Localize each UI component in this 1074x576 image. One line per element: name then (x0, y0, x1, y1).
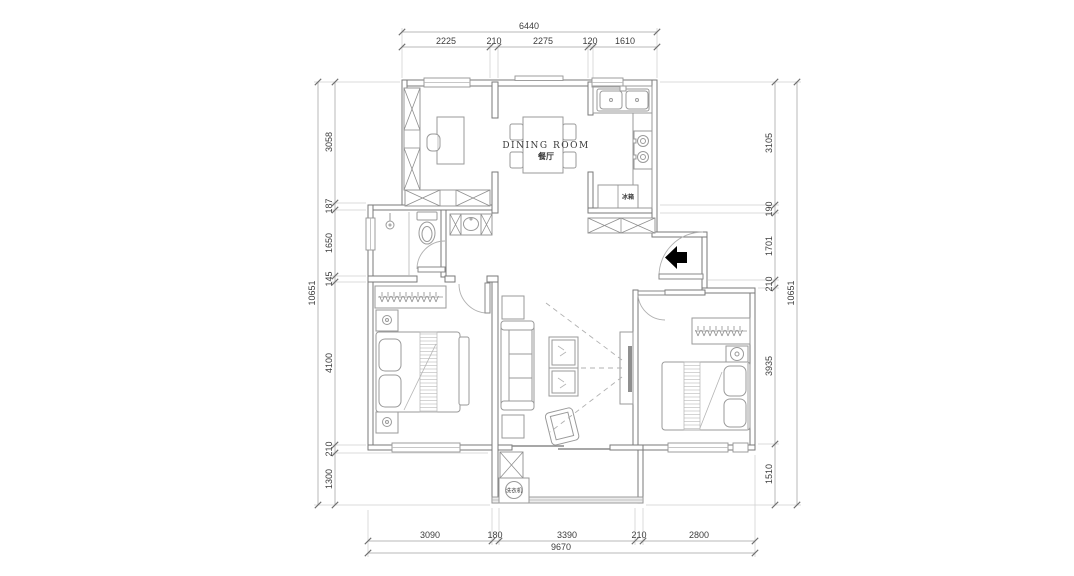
dim-bottom-total: 9670 (551, 542, 571, 552)
dim-left-seg-4: 4100 (324, 353, 334, 373)
nightstand-top (376, 310, 398, 331)
dim-bottom-seg-0: 3090 (420, 530, 440, 540)
kitchen-stove (633, 131, 652, 169)
shower-head (386, 213, 394, 229)
dim-left-seg-6: 1300 (324, 469, 334, 489)
window-bedroom2-bottom (668, 443, 748, 452)
dim-left-seg-5: 210 (324, 441, 334, 456)
dim-right-seg-4: 3935 (764, 356, 774, 376)
wall-kitchen-bottom (588, 208, 657, 213)
wall-hall-c (487, 276, 498, 282)
study-desk (437, 117, 464, 164)
dimension-bottom: 3090 180 3390 210 2800 9670 (365, 455, 758, 557)
wall-balcony-right (638, 450, 643, 503)
wall-bedroom2-top (665, 290, 705, 295)
master-bed (376, 332, 469, 412)
floor-plan: 6440 2225 210 2275 120 1610 3090 180 339… (0, 0, 1074, 576)
study-cabinet (405, 190, 490, 206)
floor-plan-canvas: 6440 2225 210 2275 120 1610 3090 180 339… (0, 0, 1074, 576)
bed-bench (459, 337, 469, 405)
dim-top-seg-1: 210 (486, 36, 501, 46)
wall-hall-a (368, 276, 417, 282)
dim-right-seg-3: 210 (764, 276, 774, 291)
master-bedroom-door (459, 283, 490, 313)
doors (417, 232, 703, 320)
nightstand-bottom (376, 412, 398, 433)
vanity (450, 214, 492, 235)
bedroom2-wardrobe (692, 318, 750, 344)
bathroom (386, 212, 492, 244)
balcony-sliding-door (512, 446, 610, 449)
window-bath-left (366, 218, 375, 250)
study-room (404, 88, 490, 206)
living-room (501, 296, 633, 446)
sofa (501, 321, 534, 410)
armchair (545, 407, 580, 446)
wall-entry-east (702, 237, 707, 293)
dim-right-total: 10651 (786, 280, 796, 305)
shoe-cabinet (588, 218, 655, 233)
dim-bottom-seg-4: 2800 (689, 530, 709, 540)
washer-label: 洗衣机 (506, 487, 523, 495)
dim-right-seg-0: 3105 (764, 133, 774, 153)
tv-screen (628, 346, 632, 392)
wall-kitchen-right (652, 80, 657, 235)
wall-hall-b (445, 276, 455, 282)
master-bedroom (375, 286, 469, 433)
fridge: 冰箱 (598, 185, 638, 208)
dim-top-seg-4: 1610 (615, 36, 635, 46)
kitchen-sink (597, 86, 649, 111)
wall-master-right (492, 276, 498, 503)
dining-chair-2 (510, 152, 523, 168)
wall-entry-top (652, 232, 707, 237)
toilet (417, 212, 437, 244)
bedroom2-door (638, 291, 665, 320)
dimension-top: 6440 2225 210 2275 120 1610 (399, 21, 660, 78)
window-dining-top (515, 76, 563, 81)
dim-right-seg-5: 1510 (764, 464, 774, 484)
bedroom2-bed (662, 362, 750, 430)
dining-room: DINING ROOM 餐厅 (502, 117, 589, 173)
fridge-label: 冰箱 (622, 193, 634, 201)
window-master-bottom (392, 443, 460, 452)
wall-step (702, 288, 755, 293)
washing-machine: 洗衣机 (499, 478, 529, 503)
wall-living-bottom-b (610, 445, 643, 450)
dim-right-seg-2: 1701 (764, 236, 774, 256)
study-chair (427, 134, 440, 151)
bedroom2 (662, 318, 750, 430)
dining-room-label-zh: 餐厅 (537, 151, 554, 161)
dining-chair-3 (563, 124, 576, 140)
wall-living-bottom-a (498, 445, 512, 450)
dim-left-seg-0: 3058 (324, 132, 334, 152)
wall-kitchen-left-b (588, 172, 593, 213)
coffee-table (549, 337, 578, 396)
dining-chair-4 (563, 152, 576, 168)
dim-left-seg-2: 1650 (324, 233, 334, 253)
dining-room-label-en: DINING ROOM (502, 141, 589, 151)
dim-bottom-seg-2: 3390 (557, 530, 577, 540)
balcony: 洗衣机 (499, 452, 529, 503)
dim-top-seg-0: 2225 (436, 36, 456, 46)
dim-left-seg-1: 187 (324, 198, 334, 213)
wall-bedroom2-right (750, 293, 755, 450)
dim-top-seg-3: 120 (582, 36, 597, 46)
wall-study-right-b (492, 172, 498, 213)
dim-bottom-seg-3: 210 (631, 530, 646, 540)
side-table-bottom (502, 415, 524, 438)
dim-top-total: 6440 (519, 21, 539, 31)
dim-bottom-seg-1: 180 (487, 530, 502, 540)
wall-bedroom2-left (633, 290, 638, 450)
wall-study-right-a (492, 82, 498, 118)
dim-right-seg-1: 190 (764, 201, 774, 216)
balcony-cabinet (500, 452, 523, 478)
bedroom2-fan (726, 346, 748, 363)
window-study-top (424, 78, 470, 87)
dim-top-seg-2: 2275 (533, 36, 553, 46)
dining-chair-1 (510, 124, 523, 140)
dim-left-seg-3: 145 (324, 271, 334, 286)
study-wardrobe (404, 88, 420, 190)
dim-left-total: 10651 (307, 280, 317, 305)
master-wardrobe (375, 286, 446, 308)
side-table-top (502, 296, 524, 319)
